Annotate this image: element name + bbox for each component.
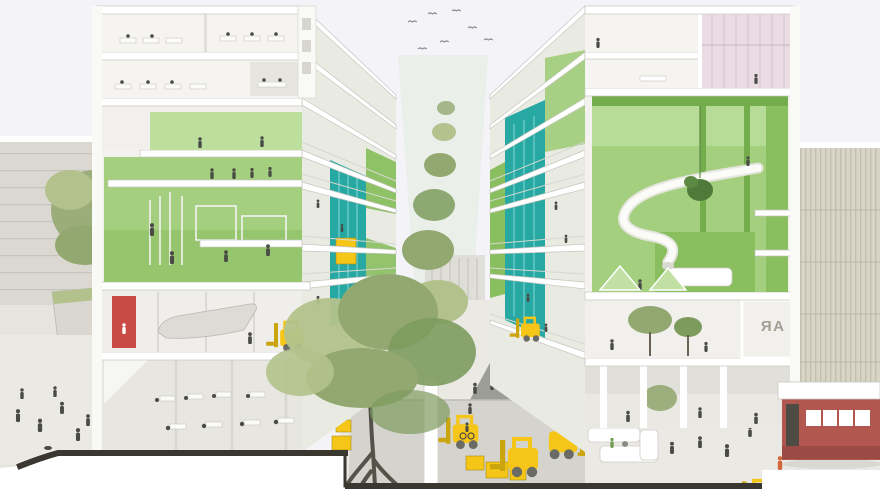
person-figure xyxy=(268,167,271,177)
person-figure xyxy=(670,442,674,454)
roof-slab xyxy=(585,6,795,14)
green-gym-hall xyxy=(104,157,302,282)
arcade-ground-floor xyxy=(585,366,795,428)
kiosk-door xyxy=(786,404,799,446)
person-figure xyxy=(610,438,613,448)
person-figure xyxy=(754,74,757,84)
person-figure xyxy=(545,323,548,332)
gym-mezzanine xyxy=(200,240,302,247)
red-kiosk xyxy=(778,382,880,469)
person-figure xyxy=(224,250,228,262)
climber-figure xyxy=(122,323,125,334)
ground-floor-workshop xyxy=(100,290,303,352)
person-figure xyxy=(250,168,253,178)
person-figure xyxy=(60,402,64,414)
green-facade-panel xyxy=(545,50,585,152)
person-figure xyxy=(610,339,613,350)
person-figure xyxy=(20,388,23,399)
upper-green-room xyxy=(100,105,302,150)
end-wall xyxy=(790,6,800,428)
cargo-crate xyxy=(466,456,484,470)
person-figure xyxy=(596,38,599,48)
right-building-section-face: AR xyxy=(585,6,800,428)
person-figure xyxy=(170,251,174,264)
person-figure xyxy=(468,403,471,414)
facade-signage: AR xyxy=(759,318,784,335)
person-figure xyxy=(725,444,729,457)
indoor-tree xyxy=(628,306,672,334)
dog-figure xyxy=(44,446,52,450)
person-figure xyxy=(565,235,568,243)
roof-slab xyxy=(96,6,302,14)
person-figure xyxy=(150,223,154,236)
person-figure xyxy=(555,201,558,210)
person-figure xyxy=(266,244,270,256)
scene-canvas: AR xyxy=(0,0,880,495)
person-figure xyxy=(698,436,702,448)
window xyxy=(302,62,311,74)
person-figure xyxy=(626,411,630,422)
person-figure xyxy=(248,332,252,344)
person-figure xyxy=(746,156,749,166)
right-building: AR xyxy=(490,6,800,452)
person-figure xyxy=(778,456,782,470)
person-figure xyxy=(210,168,213,179)
setback-volume xyxy=(298,6,316,98)
person-figure xyxy=(232,168,235,179)
office-floor-5 xyxy=(100,13,302,52)
plaza-left xyxy=(0,335,96,465)
kiosk-roof xyxy=(778,382,880,399)
person-figure xyxy=(198,137,201,148)
arcade-tree xyxy=(643,385,677,411)
table xyxy=(640,76,666,81)
green-atrium xyxy=(592,106,795,292)
window xyxy=(302,40,311,52)
coffee-table xyxy=(622,441,628,447)
indoor-tree xyxy=(674,317,702,337)
person-figure xyxy=(53,386,56,397)
person-figure xyxy=(527,294,530,302)
person-figure xyxy=(473,383,477,394)
end-wall xyxy=(92,6,102,452)
person-figure xyxy=(704,342,707,352)
person-figure xyxy=(38,419,42,432)
meeting-room xyxy=(250,62,298,96)
person-figure xyxy=(86,414,90,426)
atrium-fascia xyxy=(592,96,788,106)
person-figure xyxy=(698,407,701,418)
background-building-right xyxy=(798,142,880,408)
indoor-garden-floor: AR xyxy=(585,300,795,358)
office-floor-4 xyxy=(100,59,302,98)
window xyxy=(302,18,311,30)
cargo-crate xyxy=(332,436,351,450)
red-climbing-wall xyxy=(112,296,136,348)
person-figure xyxy=(76,428,80,441)
person-figure xyxy=(317,199,320,208)
person-figure xyxy=(754,413,758,424)
person-figure xyxy=(16,409,20,422)
person-figure xyxy=(260,136,263,147)
top-floors xyxy=(585,13,792,88)
architectural-rendering: AR xyxy=(0,0,880,495)
person-figure xyxy=(341,224,344,232)
pink-glazed-facade xyxy=(700,13,792,88)
